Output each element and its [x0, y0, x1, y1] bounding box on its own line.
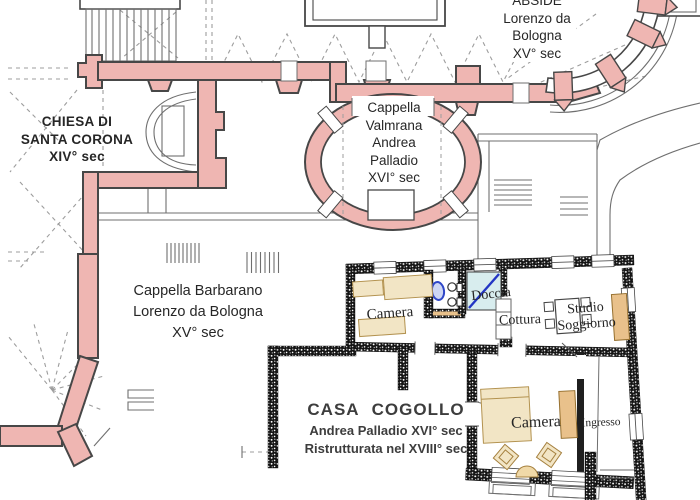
barbarano-line: Lorenzo da Bologna	[133, 302, 263, 323]
chiesa-line: XIV° sec	[21, 148, 133, 166]
room-label-studio-soggiorno: Studio Soggiorno	[556, 299, 616, 335]
bathroom-fixtures	[431, 281, 462, 306]
room-label-ingresso: Ingresso	[581, 415, 620, 431]
floorplan-page: CHIESA DI SANTA CORONA XIV° sec ABSIDE L…	[0, 0, 700, 500]
casa-title: CASA COGOLLO	[305, 398, 468, 422]
barbarano-line: Cappella Barbarano	[133, 281, 263, 302]
abside-label: ABSIDE Lorenzo da Bologna XV° sec	[498, 0, 576, 62]
abside-line: ABSIDE	[503, 0, 571, 10]
abside-line: Bologna	[503, 27, 571, 45]
barbarano-line: XV° sec	[133, 323, 263, 344]
casa-cogollo-label: CASA COGOLLO Andrea Palladio XVI° sec Ri…	[305, 398, 468, 458]
cappella-barbarano-label: Cappella Barbarano Lorenzo da Bologna XV…	[133, 281, 263, 344]
chiesa-line: CHIESA DI	[21, 113, 133, 131]
room-label-cottura: Cottura	[499, 311, 542, 331]
room-label-camera-upper: Camera	[366, 303, 414, 326]
valmarana-line: Cappella	[366, 99, 423, 117]
abside-line: Lorenzo da	[503, 10, 571, 28]
chiesa-santa-corona-label: CHIESA DI SANTA CORONA XIV° sec	[21, 113, 133, 166]
valmarana-line: Valmrana	[366, 117, 423, 135]
valmarana-line: Palladio	[366, 152, 423, 170]
valmarana-line: XVI° sec	[366, 169, 423, 187]
valmarana-line: Andrea	[366, 134, 423, 152]
room-label-camera-lower: Camera	[511, 412, 561, 435]
cappella-valmarana-label: Cappella Valmrana Andrea Palladio XVI° s…	[361, 99, 428, 187]
casa-subtitle-2: Ristrutturata nel XVIII° sec	[305, 440, 468, 458]
casa-subtitle-1: Andrea Palladio XVI° sec	[305, 422, 468, 440]
abside-line: XV° sec	[503, 45, 571, 63]
chiesa-line: SANTA CORONA	[21, 131, 133, 149]
